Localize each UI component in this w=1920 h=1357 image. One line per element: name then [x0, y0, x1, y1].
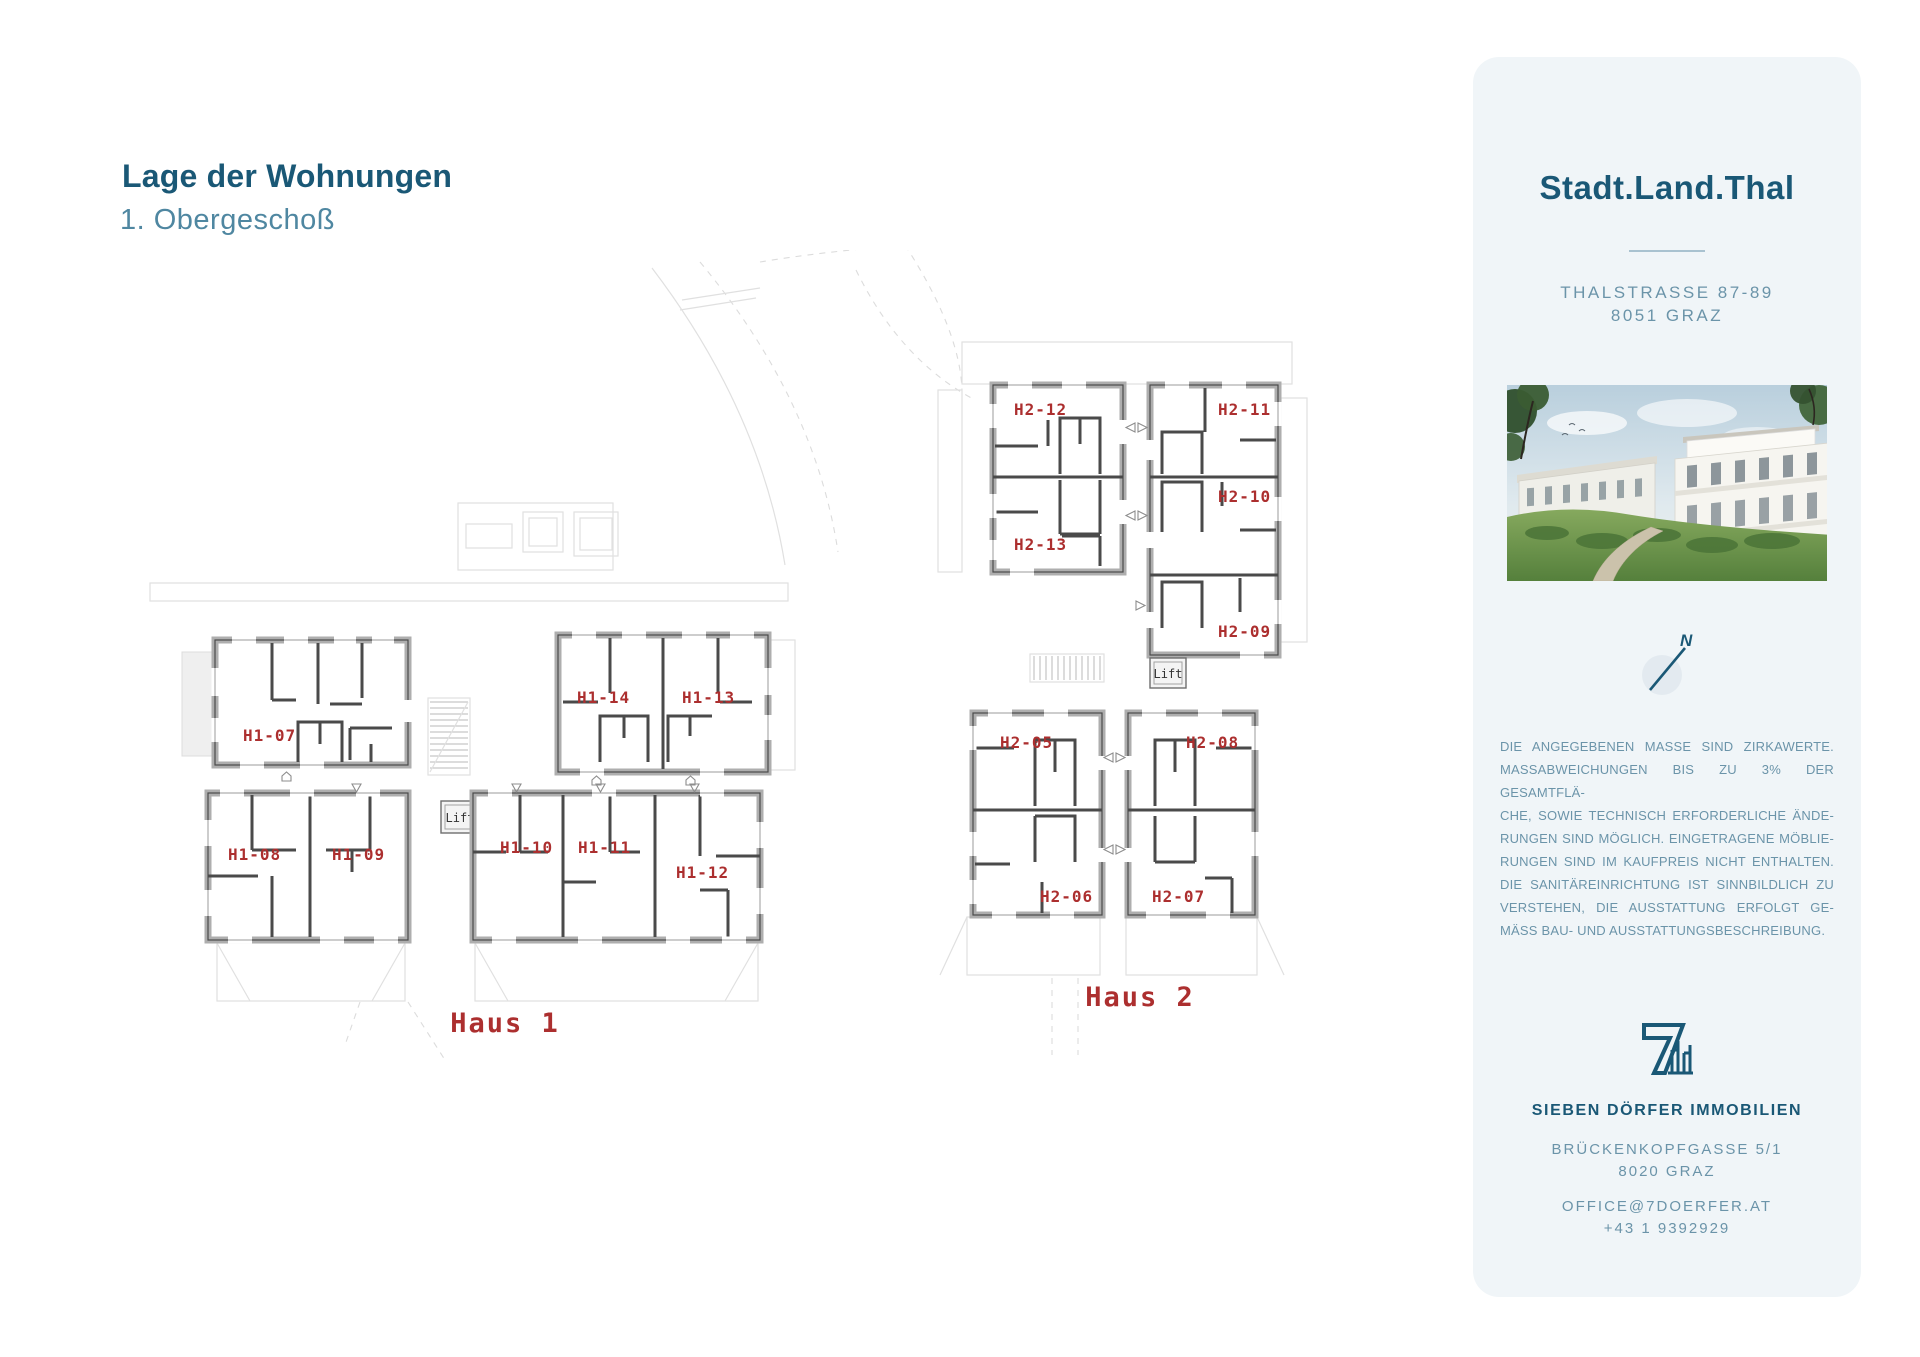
company-address: BRÜCKENKOPFGASSE 5/1 8020 GRAZ [1473, 1139, 1861, 1183]
company-address-line2: 8020 GRAZ [1473, 1161, 1861, 1183]
disclaimer-line: DIE ANGEGEBENEN MASSE SIND ZIRKAWERTE. [1500, 735, 1834, 758]
project-brand: Stadt.Land.Thal [1473, 169, 1861, 207]
disclaimer-text: DIE ANGEGEBENEN MASSE SIND ZIRKAWERTE. M… [1500, 735, 1834, 942]
haus2-lift: Lift [1150, 658, 1186, 688]
haus1-caption: Haus 1 [450, 1008, 560, 1039]
disclaimer-line: RUNGEN SIND IM KAUFPREIS NICHT ENTHALTEN… [1500, 850, 1834, 873]
unit-label-h1-13: H1-13 [682, 688, 735, 707]
disclaimer-line: CHE, SOWIE TECHNISCH ERFORDERLICHE ÄNDE- [1500, 804, 1834, 827]
unit-label-h1-12: H1-12 [676, 863, 729, 882]
company-name: SIEBEN DÖRFER IMMOBILIEN [1473, 1102, 1861, 1120]
floorplan-drawing: Lift [100, 250, 1400, 1100]
disclaimer-line: MÄSS BAU- UND AUSSTATTUNGSBESCHREIBUNG. [1500, 919, 1834, 942]
company-contact: OFFICE@7DOERFER.AT +43 1 9392929 [1473, 1196, 1861, 1240]
disclaimer-line: MASSABWEICHUNGEN BIS ZU 3% DER GESAMTFLÄ… [1500, 758, 1834, 804]
unit-label-h2-13: H2-13 [1014, 535, 1067, 554]
company-logo-icon [1639, 1016, 1695, 1083]
unit-label-h1-11: H1-11 [578, 838, 631, 857]
unit-label-h1-09: H1-09 [332, 845, 385, 864]
haus2-block-h2-11-10-09 [1150, 385, 1278, 655]
project-address-line2: 8051 GRAZ [1473, 304, 1861, 327]
unit-label-h2-07: H2-07 [1152, 887, 1205, 906]
unit-label-h1-08: H1-08 [228, 845, 281, 864]
page-subtitle: 1. Obergeschoß [120, 204, 335, 237]
unit-label-h2-08: H2-08 [1186, 733, 1239, 752]
project-address-line1: THALSTRASSE 87-89 [1473, 281, 1861, 304]
page-title: Lage der Wohnungen [122, 158, 452, 195]
company-phone: +43 1 9392929 [1473, 1218, 1861, 1240]
unit-label-h2-09: H2-09 [1218, 622, 1271, 641]
unit-label-h1-07: H1-07 [243, 726, 296, 745]
company-address-line1: BRÜCKENKOPFGASSE 5/1 [1473, 1139, 1861, 1161]
floorplan-page: Lage der Wohnungen 1. Obergeschoß [0, 0, 1920, 1357]
unit-label-h2-06: H2-06 [1040, 887, 1093, 906]
unit-label-h2-10: H2-10 [1218, 487, 1271, 506]
disclaimer-line: RUNGEN SIND MÖGLICH. EINGETRAGENE MÖBLIE… [1500, 827, 1834, 850]
disclaimer-line: DIE SANITÄREINRICHTUNG IST SINNBILDLICH … [1500, 873, 1834, 896]
brand-divider [1629, 250, 1705, 252]
project-address: THALSTRASSE 87-89 8051 GRAZ [1473, 281, 1861, 327]
building-rendering-image [1507, 385, 1827, 581]
haus1-block-h1-08-09 [208, 793, 408, 940]
disclaimer-line: VERSTEHEN, DIE AUSSTATTUNG ERFOLGT GE- [1500, 896, 1834, 919]
haus1-block-h1-07 [215, 640, 408, 765]
unit-label-h2-11: H2-11 [1218, 400, 1271, 419]
unit-label-h2-12: H2-12 [1014, 400, 1067, 419]
haus1-site-decoration [150, 503, 795, 1060]
haus2-staircase [1030, 654, 1104, 682]
info-panel: Stadt.Land.Thal THALSTRASSE 87-89 8051 G… [1473, 57, 1861, 1297]
company-email: OFFICE@7DOERFER.AT [1473, 1196, 1861, 1218]
haus2-lift-label: Lift [1154, 667, 1183, 681]
north-arrow: N [1630, 631, 1702, 708]
unit-label-h1-14: H1-14 [577, 688, 630, 707]
site-outline-curves [652, 250, 975, 565]
unit-label-h1-10: H1-10 [500, 838, 553, 857]
haus2-caption: Haus 2 [1085, 982, 1195, 1013]
haus1-staircase [428, 698, 470, 775]
north-label: N [1680, 631, 1693, 650]
unit-label-h2-05: H2-05 [1000, 733, 1053, 752]
